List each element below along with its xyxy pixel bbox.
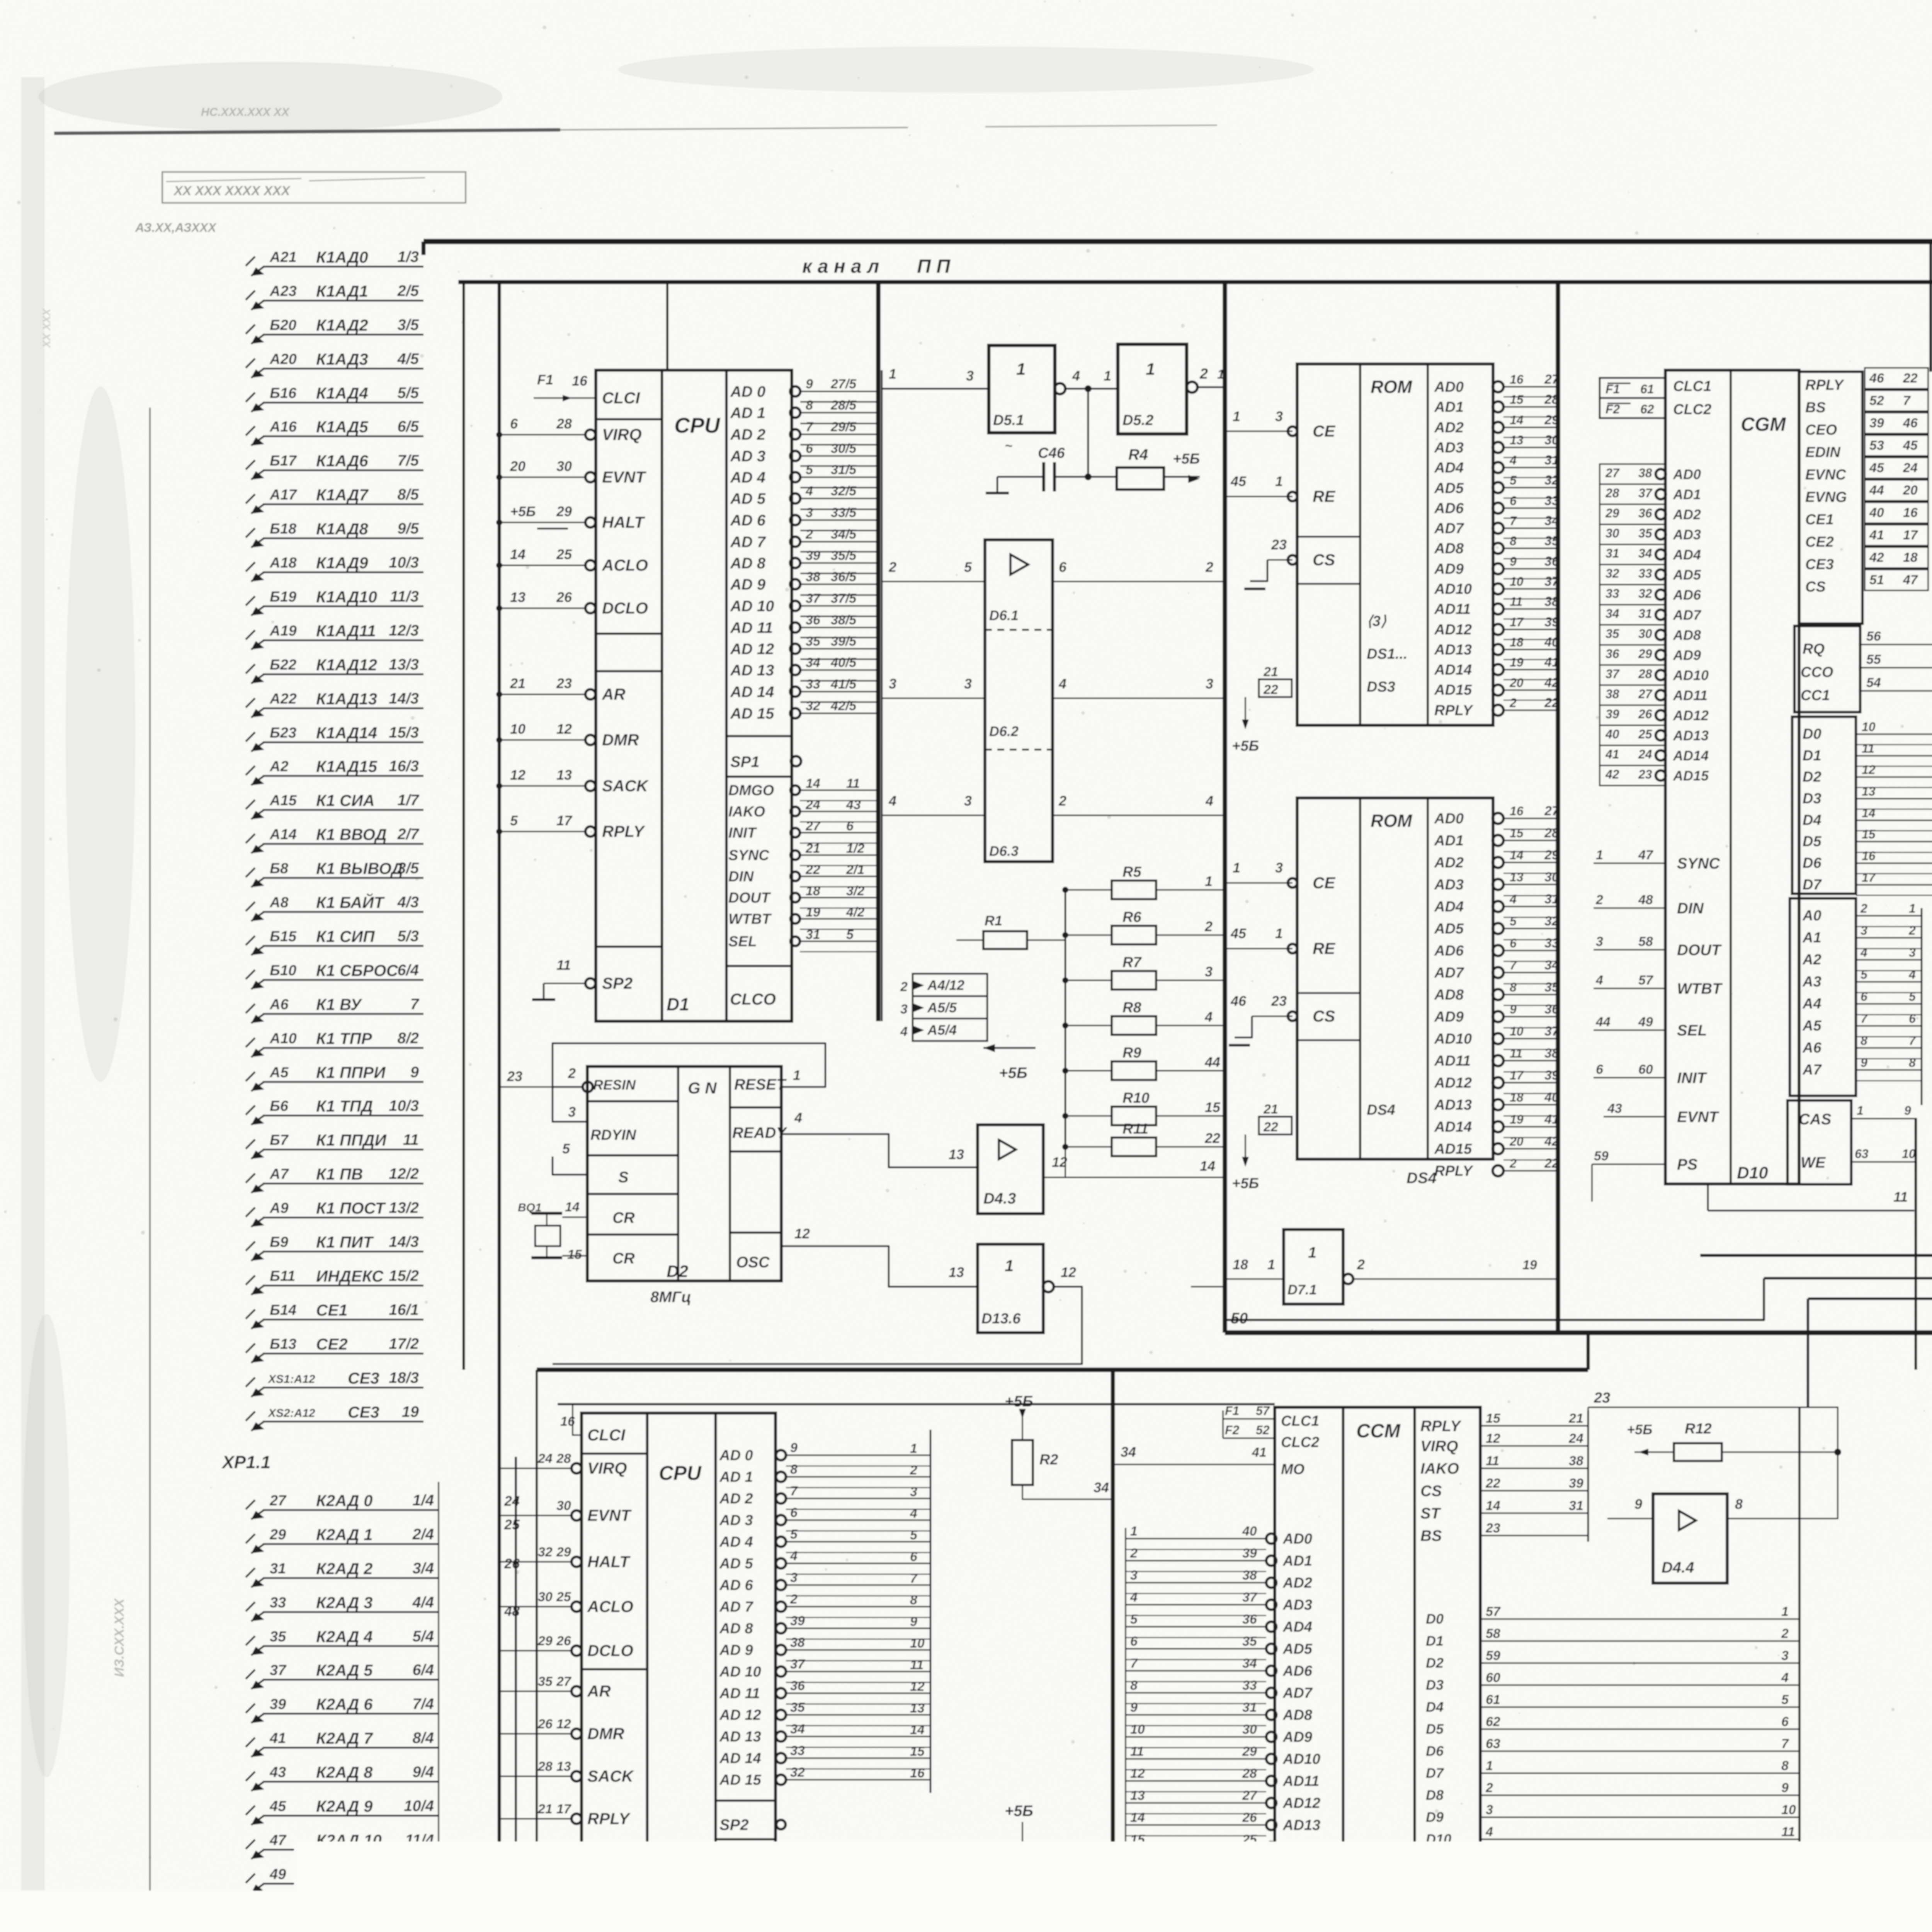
svg-text:D6.3: D6.3 xyxy=(989,843,1019,859)
svg-text:9: 9 xyxy=(1510,1002,1517,1016)
svg-text:VIRQ: VIRQ xyxy=(1420,1438,1458,1455)
svg-text:40: 40 xyxy=(1544,635,1559,650)
svg-text:37: 37 xyxy=(806,591,821,606)
svg-text:5: 5 xyxy=(964,559,972,575)
svg-text:К1 ВВОД: К1 ВВОД xyxy=(316,825,387,844)
svg-text:19: 19 xyxy=(1510,1112,1524,1126)
svg-text:1: 1 xyxy=(1275,925,1283,941)
svg-text:6: 6 xyxy=(1510,494,1517,508)
svg-text:CPU: CPU xyxy=(659,1462,702,1485)
svg-text:42: 42 xyxy=(1544,1134,1559,1149)
svg-text:33/5: 33/5 xyxy=(831,505,857,520)
svg-text:39: 39 xyxy=(1544,615,1559,629)
svg-text:OSC: OSC xyxy=(736,1254,770,1271)
svg-text:2: 2 xyxy=(1130,1546,1138,1561)
svg-text:8: 8 xyxy=(1861,1034,1867,1048)
svg-text:+5Б: +5Б xyxy=(1005,1393,1033,1410)
svg-text:2/7: 2/7 xyxy=(397,826,419,843)
svg-text:R5: R5 xyxy=(1122,864,1141,880)
svg-text:16: 16 xyxy=(1510,804,1524,818)
svg-text:А9: А9 xyxy=(269,1200,289,1216)
svg-text:AD10: AD10 xyxy=(1673,667,1709,683)
svg-text:40: 40 xyxy=(1242,1524,1257,1539)
svg-text:2: 2 xyxy=(1485,1781,1493,1795)
svg-text:7: 7 xyxy=(806,420,814,434)
svg-text:41: 41 xyxy=(1869,528,1884,543)
svg-text:12/2: 12/2 xyxy=(389,1165,419,1182)
svg-text:17: 17 xyxy=(556,813,573,828)
svg-text:CE: CE xyxy=(1313,874,1336,892)
svg-text:31: 31 xyxy=(1605,546,1619,560)
svg-text:32: 32 xyxy=(538,1545,553,1560)
svg-text:AD15: AD15 xyxy=(1673,768,1709,784)
svg-text:20: 20 xyxy=(1903,483,1918,498)
svg-text:8: 8 xyxy=(1510,980,1517,994)
svg-text:А14: А14 xyxy=(269,827,297,843)
svg-text:BQ1: BQ1 xyxy=(518,1201,542,1214)
svg-text:40: 40 xyxy=(1544,1090,1559,1105)
svg-text:34: 34 xyxy=(1121,1444,1136,1460)
svg-text:15: 15 xyxy=(1510,826,1524,840)
svg-text:A3: A3 xyxy=(1802,974,1821,990)
svg-text:19: 19 xyxy=(1510,655,1524,669)
svg-text:D3: D3 xyxy=(1426,1677,1444,1693)
svg-text:R10: R10 xyxy=(1122,1090,1150,1106)
svg-text:AD 12: AD 12 xyxy=(719,1707,761,1723)
svg-text:41: 41 xyxy=(1605,747,1619,761)
svg-text:А4/12: А4/12 xyxy=(927,977,964,993)
svg-text:СЕ3: СЕ3 xyxy=(348,1403,379,1421)
svg-text:10/3: 10/3 xyxy=(389,554,419,571)
svg-text:6: 6 xyxy=(910,1549,918,1564)
svg-text:17/2: 17/2 xyxy=(389,1335,419,1352)
svg-text:К1 ППДИ: К1 ППДИ xyxy=(316,1131,387,1149)
svg-text:ИНДЕКС: ИНДЕКС xyxy=(316,1267,384,1285)
svg-text:К2АД 0: К2АД 0 xyxy=(316,1492,372,1510)
svg-text:14: 14 xyxy=(1781,1891,1796,1905)
svg-text:63: 63 xyxy=(1486,1736,1500,1751)
svg-text:Б10: Б10 xyxy=(270,963,296,979)
svg-text:D6.1: D6.1 xyxy=(989,607,1019,623)
svg-text:R9: R9 xyxy=(1122,1045,1141,1061)
svg-text:+5Б: +5Б xyxy=(1232,1175,1259,1192)
svg-text:35: 35 xyxy=(1544,534,1560,548)
svg-text:А15: А15 xyxy=(269,793,297,809)
svg-text:SEL: SEL xyxy=(728,934,757,950)
svg-text:39/5: 39/5 xyxy=(831,634,857,649)
svg-text:2: 2 xyxy=(568,1065,576,1081)
svg-text:32: 32 xyxy=(1605,566,1619,580)
svg-text:9/5: 9/5 xyxy=(397,520,419,537)
svg-text:DIN: DIN xyxy=(1677,900,1704,917)
svg-text:1: 1 xyxy=(1217,367,1225,382)
svg-text:VIRQ: VIRQ xyxy=(602,425,642,444)
svg-text:61: 61 xyxy=(1640,382,1654,396)
svg-text:13: 13 xyxy=(1510,433,1524,447)
svg-text:35: 35 xyxy=(1638,526,1653,540)
svg-text:2: 2 xyxy=(888,559,896,575)
svg-text:AD2: AD2 xyxy=(1434,855,1464,871)
svg-text:SP2: SP2 xyxy=(602,974,633,992)
svg-text:42: 42 xyxy=(1605,767,1619,781)
svg-text:51: 51 xyxy=(270,1900,286,1917)
svg-text:63: 63 xyxy=(1855,1147,1869,1161)
svg-text:33: 33 xyxy=(806,677,820,692)
svg-text:А21: А21 xyxy=(269,249,297,265)
svg-text:6: 6 xyxy=(510,416,518,432)
svg-text:34: 34 xyxy=(1094,1480,1109,1495)
svg-text:1/2: 1/2 xyxy=(846,841,864,856)
svg-text:44: 44 xyxy=(1204,1054,1220,1070)
svg-text:12: 12 xyxy=(1052,1154,1067,1170)
svg-text:34: 34 xyxy=(1544,514,1559,528)
svg-text:31: 31 xyxy=(1242,1700,1257,1715)
svg-text:29: 29 xyxy=(269,1527,286,1543)
svg-text:22: 22 xyxy=(1263,1120,1278,1134)
svg-text:14: 14 xyxy=(1130,1810,1145,1825)
svg-text:8/5: 8/5 xyxy=(397,486,419,503)
svg-text:1: 1 xyxy=(1233,860,1240,876)
svg-text:26: 26 xyxy=(556,589,572,605)
svg-text:AD5: AD5 xyxy=(1434,921,1464,937)
svg-text:ХР1.1: ХР1.1 xyxy=(221,1452,270,1472)
svg-text:D4: D4 xyxy=(1426,1699,1444,1715)
svg-text:DMGO: DMGO xyxy=(718,1847,764,1863)
svg-text:16: 16 xyxy=(1510,372,1524,386)
svg-text:AD 0: AD 0 xyxy=(730,383,765,400)
svg-text:18: 18 xyxy=(1903,550,1918,565)
svg-text:D2: D2 xyxy=(1803,769,1821,785)
svg-text:1: 1 xyxy=(1146,360,1155,379)
svg-text:CE3: CE3 xyxy=(1805,556,1834,573)
svg-text:AD14: AD14 xyxy=(1434,1119,1472,1135)
svg-text:39: 39 xyxy=(790,1614,805,1628)
svg-text:3: 3 xyxy=(1596,934,1603,949)
svg-text:28: 28 xyxy=(1605,486,1619,500)
svg-text:4: 4 xyxy=(888,793,896,809)
svg-text:28: 28 xyxy=(556,1451,571,1466)
svg-text:18: 18 xyxy=(896,1891,911,1906)
svg-text:53: 53 xyxy=(1869,438,1884,453)
svg-text:AD12: AD12 xyxy=(1434,622,1472,638)
svg-text:CCM: CCM xyxy=(1356,1420,1401,1442)
svg-text:4: 4 xyxy=(910,1506,917,1521)
svg-text:3: 3 xyxy=(568,1104,576,1120)
svg-text:14/3: 14/3 xyxy=(389,690,419,707)
svg-text:2/4: 2/4 xyxy=(412,1526,434,1543)
svg-text:21: 21 xyxy=(537,1802,553,1816)
svg-text:55: 55 xyxy=(1866,652,1881,667)
svg-text:AD3: AD3 xyxy=(1434,440,1464,456)
svg-text:29/5: 29/5 xyxy=(830,420,857,434)
svg-text:К1 ВУ: К1 ВУ xyxy=(316,995,363,1014)
svg-text:3: 3 xyxy=(806,505,813,520)
svg-text:11: 11 xyxy=(1510,1046,1522,1060)
svg-text:AD 6: AD 6 xyxy=(730,512,766,529)
svg-text:35: 35 xyxy=(270,1629,286,1645)
svg-text:5: 5 xyxy=(562,1141,570,1156)
svg-text:25: 25 xyxy=(504,1517,520,1532)
svg-text:9: 9 xyxy=(1904,1104,1911,1117)
svg-text:20: 20 xyxy=(510,458,526,474)
svg-text:38: 38 xyxy=(1638,466,1652,480)
svg-text:2: 2 xyxy=(1860,901,1867,915)
svg-text:AD 8: AD 8 xyxy=(719,1621,753,1637)
svg-text:AD2: AD2 xyxy=(1282,1575,1312,1591)
svg-text:INIT: INIT xyxy=(1677,1070,1708,1087)
svg-text:1: 1 xyxy=(1275,473,1283,489)
svg-text:30: 30 xyxy=(556,1498,571,1513)
svg-text:D10: D10 xyxy=(1426,1831,1451,1847)
svg-text:39: 39 xyxy=(1544,1068,1559,1083)
svg-text:36: 36 xyxy=(1544,1002,1560,1017)
svg-text:3: 3 xyxy=(1205,964,1213,980)
svg-text:14: 14 xyxy=(790,1841,805,1855)
svg-text:12: 12 xyxy=(510,767,526,783)
svg-text:2: 2 xyxy=(910,1463,917,1478)
svg-text:RPLY: RPLY xyxy=(602,822,646,840)
svg-text:17: 17 xyxy=(1510,1068,1524,1082)
svg-text:27/5: 27/5 xyxy=(830,377,857,391)
svg-text:21: 21 xyxy=(805,841,820,856)
svg-text:43: 43 xyxy=(1607,1101,1622,1116)
svg-text:5: 5 xyxy=(1861,968,1868,981)
svg-text:35: 35 xyxy=(538,1674,553,1689)
svg-text:AD12: AD12 xyxy=(1434,1075,1472,1091)
svg-text:39: 39 xyxy=(806,548,820,563)
svg-text:К2АД 9: К2АД 9 xyxy=(316,1797,373,1815)
svg-text:43: 43 xyxy=(269,1764,286,1781)
svg-text:6: 6 xyxy=(1781,1714,1789,1729)
svg-text:1: 1 xyxy=(889,366,896,382)
svg-text:31: 31 xyxy=(1544,892,1559,906)
svg-text:26: 26 xyxy=(1242,1810,1257,1825)
svg-text:XS2:А12: XS2:А12 xyxy=(267,1407,315,1420)
svg-text:27: 27 xyxy=(1544,804,1560,818)
svg-text:60: 60 xyxy=(1486,1670,1500,1685)
svg-text:3/5: 3/5 xyxy=(397,860,419,877)
svg-text:42: 42 xyxy=(1544,675,1559,690)
svg-text:D7.1: D7.1 xyxy=(1287,1282,1317,1298)
svg-text:5: 5 xyxy=(806,463,813,477)
svg-text:2: 2 xyxy=(1781,1626,1789,1641)
svg-text:AD9: AD9 xyxy=(1434,561,1464,577)
svg-text:59: 59 xyxy=(1486,1648,1500,1663)
svg-text:A1: A1 xyxy=(1802,930,1821,946)
svg-text:28: 28 xyxy=(1544,392,1559,407)
svg-text:AD 5: AD 5 xyxy=(730,490,766,507)
svg-text:7: 7 xyxy=(1510,958,1517,972)
svg-text:А5/5: А5/5 xyxy=(927,1000,957,1015)
svg-text:К2АД 2: К2АД 2 xyxy=(316,1560,372,1578)
svg-text:AD 4: AD 4 xyxy=(730,469,765,486)
svg-text:3/2: 3/2 xyxy=(846,884,864,898)
svg-text:26: 26 xyxy=(537,1717,553,1731)
svg-text:18: 18 xyxy=(1510,1090,1524,1104)
svg-text:HALT: HALT xyxy=(602,513,645,531)
svg-text:К1 ППРИ: К1 ППРИ xyxy=(316,1063,386,1082)
svg-text:8: 8 xyxy=(790,1462,798,1477)
svg-text:К1АД8: К1АД8 xyxy=(316,520,368,538)
svg-text:AR: AR xyxy=(602,685,626,703)
svg-text:11: 11 xyxy=(1781,1825,1795,1839)
svg-text:11: 11 xyxy=(1510,595,1522,609)
svg-text:44: 44 xyxy=(1869,483,1884,498)
svg-text:AD8: AD8 xyxy=(1434,541,1464,557)
svg-text:R3: R3 xyxy=(1039,1857,1058,1874)
svg-text:ACLO: ACLO xyxy=(587,1597,633,1616)
svg-text:RE: RE xyxy=(1313,487,1336,505)
svg-text:12: 12 xyxy=(1130,1766,1145,1781)
svg-text:16: 16 xyxy=(910,1766,925,1781)
svg-text:9: 9 xyxy=(1781,1781,1789,1795)
svg-text:IAKO: IAKO xyxy=(1420,1460,1459,1477)
svg-text:К2АД 5: К2АД 5 xyxy=(316,1661,373,1679)
svg-text:39: 39 xyxy=(270,1696,286,1713)
svg-text:23: 23 xyxy=(1594,1390,1610,1406)
svg-text:R7: R7 xyxy=(1122,954,1142,971)
svg-text:7: 7 xyxy=(410,996,420,1013)
svg-text:37: 37 xyxy=(1242,1590,1258,1605)
svg-text:3: 3 xyxy=(1781,1648,1789,1663)
svg-text:К1 ТПД: К1 ТПД xyxy=(316,1097,373,1115)
svg-text:18: 18 xyxy=(806,884,820,898)
svg-text:Б16: Б16 xyxy=(270,385,297,401)
svg-text:9: 9 xyxy=(1130,1700,1138,1715)
svg-text:16: 16 xyxy=(1903,505,1918,520)
svg-text:12: 12 xyxy=(1862,763,1876,777)
svg-text:К1 ВЫВОД: К1 ВЫВОД xyxy=(316,859,403,878)
svg-text:SEL: SEL xyxy=(1677,1022,1707,1039)
svg-text:2: 2 xyxy=(1204,918,1213,934)
svg-text:D1: D1 xyxy=(1426,1633,1444,1649)
svg-text:CLC1: CLC1 xyxy=(1281,1413,1319,1429)
svg-text:+5Б: +5Б xyxy=(1627,1422,1653,1437)
svg-text:НС.ХХХ.ХХХ ХХ: НС.ХХХ.ХХХ ХХ xyxy=(201,106,290,119)
svg-text:К1АД3: К1АД3 xyxy=(316,350,368,368)
svg-text:35: 35 xyxy=(1605,627,1620,641)
svg-text:60: 60 xyxy=(1638,1062,1653,1077)
svg-text:7: 7 xyxy=(1510,514,1517,528)
svg-text:22: 22 xyxy=(1544,1156,1559,1171)
svg-text:16/1: 16/1 xyxy=(389,1301,419,1318)
svg-text:58: 58 xyxy=(1638,934,1653,949)
svg-text:3: 3 xyxy=(889,676,896,692)
svg-text:AD 8: AD 8 xyxy=(730,555,766,572)
svg-text:WE: WE xyxy=(1801,1154,1826,1171)
svg-text:36: 36 xyxy=(1638,506,1652,520)
svg-text:К1 ТПР: К1 ТПР xyxy=(316,1029,372,1048)
svg-text:22: 22 xyxy=(1544,696,1559,710)
svg-text:D4.3: D4.3 xyxy=(983,1190,1016,1207)
svg-text:AD 0: AD 0 xyxy=(719,1447,753,1464)
svg-text:AD6: AD6 xyxy=(1434,500,1464,517)
svg-text:15: 15 xyxy=(567,1247,582,1262)
svg-text:28: 28 xyxy=(556,416,572,432)
svg-text:16: 16 xyxy=(1862,849,1876,863)
svg-text:23: 23 xyxy=(1485,1521,1500,1536)
svg-text:36/5: 36/5 xyxy=(831,570,857,584)
svg-text:D3: D3 xyxy=(1803,791,1821,807)
svg-text:CS: CS xyxy=(1313,1007,1335,1025)
svg-text:8: 8 xyxy=(1909,1056,1916,1070)
svg-text:1: 1 xyxy=(793,1067,801,1083)
svg-text:D4: D4 xyxy=(1803,812,1821,828)
svg-text:DMR: DMR xyxy=(587,1725,624,1743)
svg-text:10/4: 10/4 xyxy=(404,1798,434,1815)
svg-text:4: 4 xyxy=(1509,453,1517,467)
svg-text:5: 5 xyxy=(1781,1692,1789,1707)
svg-text:46: 46 xyxy=(1869,371,1884,386)
svg-text:R6: R6 xyxy=(1122,909,1141,925)
svg-text:CR: CR xyxy=(612,1209,635,1226)
svg-text:46: 46 xyxy=(1903,416,1918,430)
svg-text:D5: D5 xyxy=(1803,833,1821,850)
svg-text:D9: D9 xyxy=(1426,1809,1444,1825)
svg-text:СЕ2: СЕ2 xyxy=(316,1335,348,1353)
svg-text:17: 17 xyxy=(1130,1915,1146,1930)
svg-text:35/5: 35/5 xyxy=(831,548,857,563)
svg-text:AD 10: AD 10 xyxy=(730,598,774,615)
svg-text:AD14: AD14 xyxy=(1282,1839,1320,1855)
svg-text:К1АД1: К1АД1 xyxy=(316,282,368,300)
svg-text:AD8: AD8 xyxy=(1434,987,1464,1003)
svg-text:WTBT: WTBT xyxy=(1677,980,1723,997)
svg-text:SYNC: SYNC xyxy=(1281,1922,1324,1932)
svg-text:К2АД 3: К2АД 3 xyxy=(316,1594,372,1612)
svg-text:19: 19 xyxy=(1252,1915,1267,1930)
svg-text:AD 14: AD 14 xyxy=(719,1750,761,1767)
svg-text:HALT: HALT xyxy=(587,1553,631,1571)
svg-text:7/4: 7/4 xyxy=(412,1696,434,1713)
svg-text:45: 45 xyxy=(1869,461,1884,475)
svg-text:12: 12 xyxy=(1486,1431,1500,1446)
svg-text:К1АД9: К1АД9 xyxy=(316,554,368,572)
svg-text:BS: BS xyxy=(1420,1527,1442,1544)
svg-text:CLC2: CLC2 xyxy=(1673,401,1711,418)
svg-text:20: 20 xyxy=(1509,676,1524,690)
svg-text:AD9: AD9 xyxy=(1673,647,1701,663)
svg-text:AD 9: AD 9 xyxy=(719,1642,753,1658)
svg-text:47: 47 xyxy=(269,1832,287,1849)
svg-text:7: 7 xyxy=(1781,1736,1789,1751)
svg-text:1: 1 xyxy=(1857,1104,1864,1117)
svg-text:АЗ.ХХ,АЗХХХ: АЗ.ХХ,АЗХХХ xyxy=(135,221,217,235)
svg-text:14/3: 14/3 xyxy=(389,1233,419,1250)
svg-text:38: 38 xyxy=(1569,1454,1583,1468)
svg-text:40/5: 40/5 xyxy=(830,655,857,670)
svg-text:~: ~ xyxy=(1005,439,1012,453)
svg-text:6: 6 xyxy=(806,441,813,456)
svg-text:6: 6 xyxy=(1909,1012,1916,1026)
svg-text:DIN: DIN xyxy=(728,869,754,885)
svg-text:EVNC: EVNC xyxy=(1805,467,1846,483)
svg-text:6: 6 xyxy=(1510,936,1517,950)
svg-text:14: 14 xyxy=(1862,806,1876,820)
svg-text:5: 5 xyxy=(790,1527,798,1542)
svg-text:R12: R12 xyxy=(1685,1421,1712,1437)
svg-text:13: 13 xyxy=(949,1146,964,1162)
svg-text:9: 9 xyxy=(790,1440,798,1455)
svg-text:11/3: 11/3 xyxy=(390,588,419,605)
svg-text:6: 6 xyxy=(1861,990,1867,1003)
svg-text:SYNC: SYNC xyxy=(1677,855,1720,872)
svg-text:8: 8 xyxy=(806,398,813,413)
svg-text:К1 СБРОС: К1 СБРОС xyxy=(316,961,398,980)
svg-text:21: 21 xyxy=(1568,1411,1583,1426)
svg-text:37: 37 xyxy=(270,1662,287,1679)
svg-text:38: 38 xyxy=(806,570,820,584)
